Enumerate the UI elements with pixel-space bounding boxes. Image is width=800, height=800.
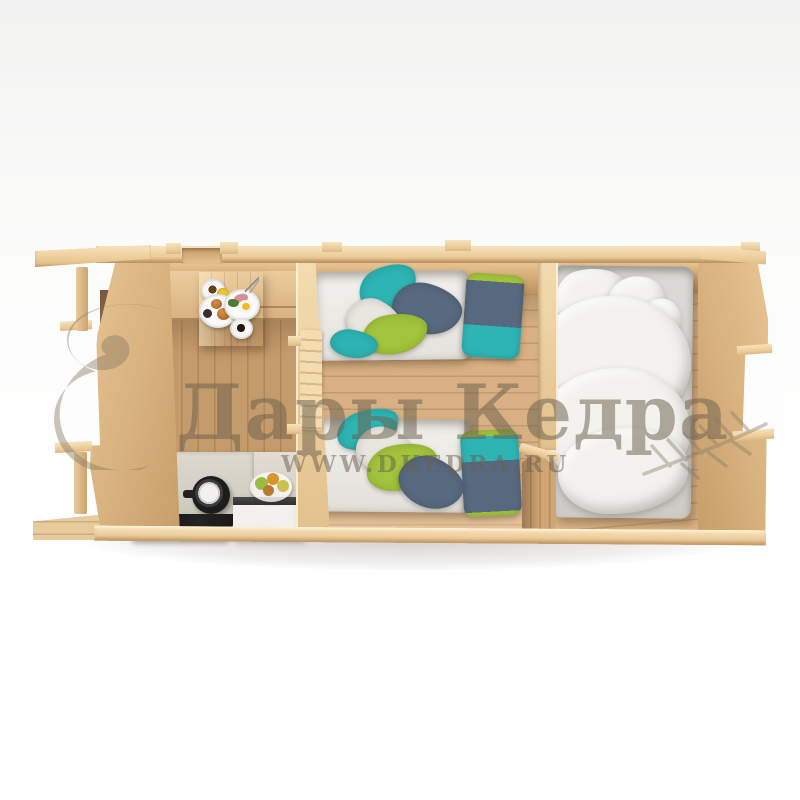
log-end-cap-1 xyxy=(322,242,342,252)
log-end-cap-2 xyxy=(445,240,471,251)
fried-egg-yolk xyxy=(242,303,250,310)
kettle xyxy=(192,476,230,514)
kettle-handle xyxy=(183,490,195,498)
scene: Дары Кедра WWW.DKEDRA.RU xyxy=(0,0,800,800)
watermark-cedar-branch-icon xyxy=(640,408,770,483)
entrance-post-right xyxy=(220,242,238,254)
entrance-doorway xyxy=(182,248,222,264)
coffee-cup-bottom xyxy=(235,322,247,334)
pillow-bed-top xyxy=(461,272,525,360)
cutlery xyxy=(245,277,259,293)
fruit-pear xyxy=(263,485,274,496)
watermark-url-text: WWW.DKEDRA.RU xyxy=(281,451,570,478)
entrance-post-left xyxy=(166,243,181,254)
partition-1-jamb-tab-top xyxy=(288,336,301,346)
fruit-lemon xyxy=(277,480,289,492)
